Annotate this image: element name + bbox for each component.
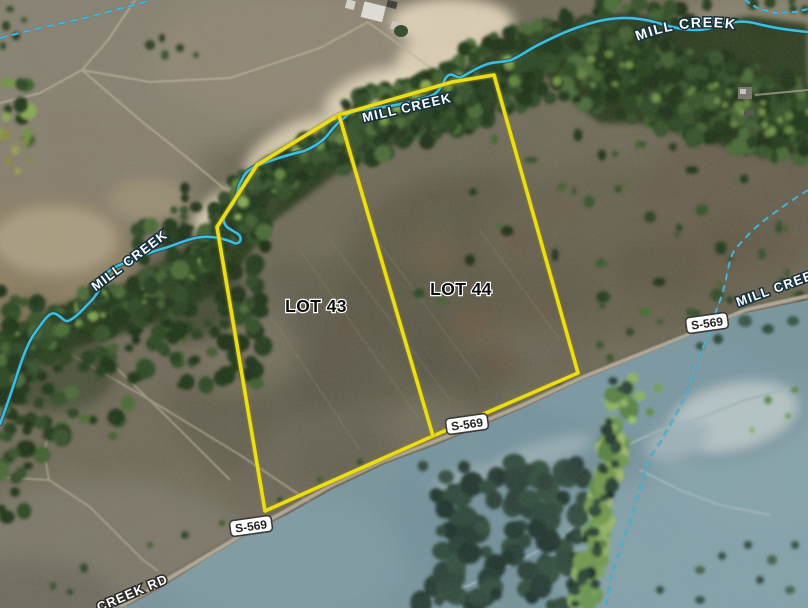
svg-text:LOT 43: LOT 43 <box>285 296 347 316</box>
svg-text:LOT 44: LOT 44 <box>430 279 492 299</box>
